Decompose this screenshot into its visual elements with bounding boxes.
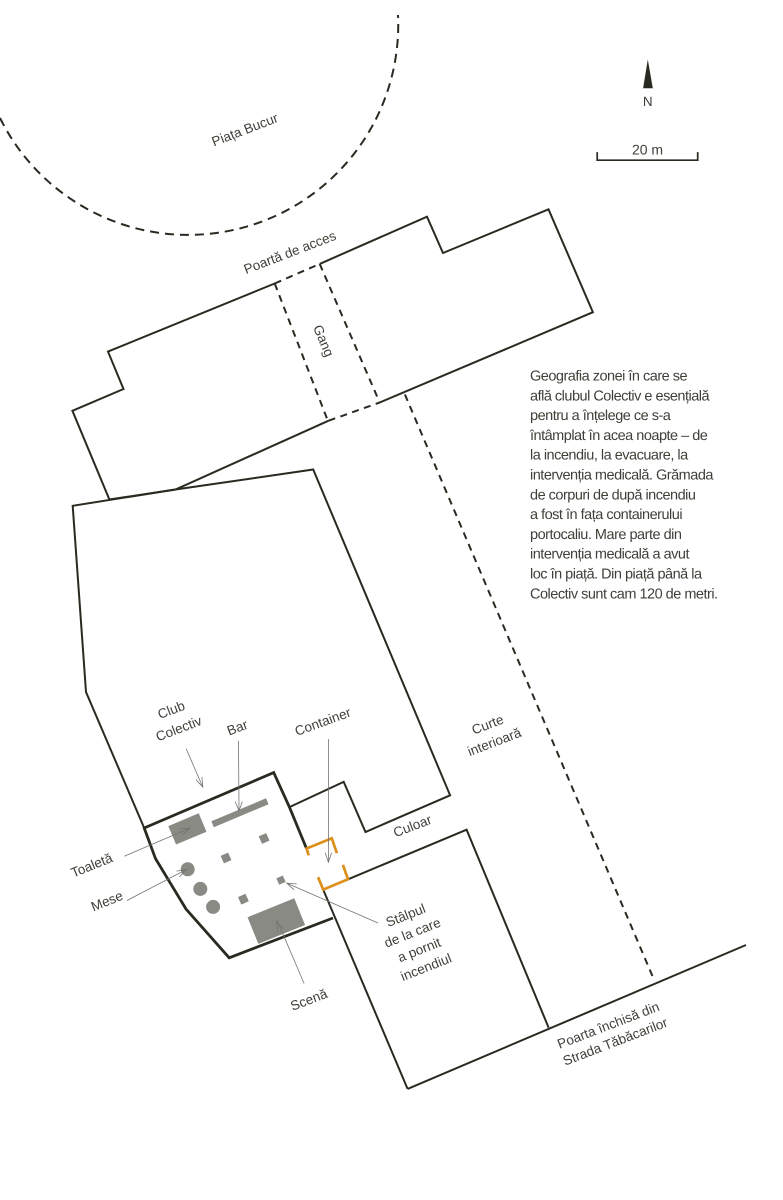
svg-text:pentru a înțelege ce s-a: pentru a înțelege ce s-a xyxy=(530,408,672,424)
svg-text:întâmplat în acea noapte – de: întâmplat în acea noapte – de xyxy=(529,428,708,444)
svg-text:Mese: Mese xyxy=(89,888,125,914)
svg-text:loc în piață. Din piață până l: loc în piață. Din piață până la xyxy=(530,567,703,583)
svg-text:Poartă de acces: Poartă de acces xyxy=(242,228,339,277)
svg-text:Culoar: Culoar xyxy=(391,812,434,840)
svg-text:află clubul Colectiv e esenția: află clubul Colectiv e esențială xyxy=(530,388,710,404)
svg-text:Scenă: Scenă xyxy=(288,986,330,1014)
svg-text:Gang: Gang xyxy=(310,323,337,359)
svg-text:Piața Bucur: Piața Bucur xyxy=(210,110,281,149)
svg-text:de corpuri de după incendiu: de corpuri de după incendiu xyxy=(530,487,696,503)
svg-text:Geografia zonei în care se: Geografia zonei în care se xyxy=(530,369,688,385)
svg-text:portocaliu. Mare parte din: portocaliu. Mare parte din xyxy=(530,527,682,543)
svg-text:la incendiu, la evacuare, la: la incendiu, la evacuare, la xyxy=(530,448,689,464)
svg-text:Colectiv sunt cam 120 de metri: Colectiv sunt cam 120 de metri. xyxy=(530,586,718,602)
svg-text:20 m: 20 m xyxy=(632,142,663,158)
svg-text:intervenția medicală. Grămada: intervenția medicală. Grămada xyxy=(530,468,714,484)
svg-text:intervenția medicală a avut: intervenția medicală a avut xyxy=(530,547,689,563)
svg-text:a fost în fața containerului: a fost în fața containerului xyxy=(530,507,682,523)
svg-text:Container: Container xyxy=(293,705,354,739)
svg-text:Bar: Bar xyxy=(225,717,250,739)
svg-text:Toaletă: Toaletă xyxy=(69,850,115,880)
svg-text:N: N xyxy=(643,94,653,109)
